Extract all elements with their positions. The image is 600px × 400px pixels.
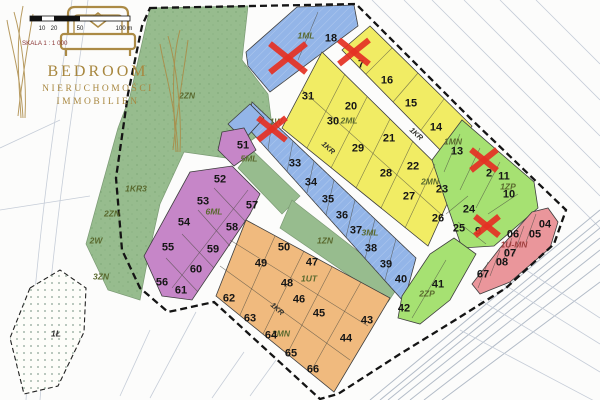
area-label-1ZN: 1ZN: [317, 236, 334, 246]
scale-segment: [30, 16, 42, 21]
lot-number-56: 56: [156, 277, 168, 289]
lot-number-11: 11: [498, 171, 510, 183]
lot-number-08: 08: [496, 257, 508, 269]
lot-number-16: 16: [381, 75, 393, 87]
lot-number-34: 34: [305, 177, 318, 189]
br and-subtitle2: IMMOBILIEN: [56, 97, 139, 107]
scale-bar: 10 20 50 100 m SKALA 1 : 1 000: [22, 16, 132, 47]
lot-number-35: 35: [322, 194, 334, 206]
lot-number-64: 64: [265, 330, 278, 342]
lot-number-33: 33: [289, 158, 301, 170]
zone-label-6ML: 6ML: [206, 207, 223, 217]
lot-number-50: 50: [278, 242, 290, 254]
brand-name: BEDROOM: [47, 63, 148, 80]
lot-number-62: 62: [223, 293, 235, 305]
lot-number-40: 40: [395, 274, 407, 286]
lot-number-61: 61: [175, 285, 187, 297]
scale-tick-50: 50: [77, 26, 84, 32]
area-label-1KR3: 1KR3: [125, 184, 147, 194]
scale-tick-10: 10: [39, 26, 46, 32]
lot-number-67: 67: [477, 269, 489, 281]
forest-area: [10, 270, 86, 394]
lot-number-28: 28: [380, 168, 392, 180]
area-label-1Ł: 1Ł: [51, 329, 61, 339]
lot-number-24: 24: [463, 204, 476, 216]
lot-number-44: 44: [340, 333, 353, 345]
lot-number-18: 18: [325, 33, 337, 45]
area-label-2ZN: 2ZN: [103, 209, 121, 219]
lot-number-05: 05: [529, 229, 541, 241]
lot-number-36: 36: [336, 210, 348, 222]
forest-texture: [10, 270, 86, 394]
lot-number-63: 63: [244, 313, 256, 325]
lot-number-25: 25: [453, 223, 465, 235]
lot-number-10: 10: [503, 189, 515, 201]
lot-number-58: 58: [226, 222, 238, 234]
lot-number-31: 31: [302, 91, 314, 103]
lot-number-27: 27: [403, 191, 415, 203]
area-label-3ZN: 3ZN: [93, 272, 110, 282]
lot-number-66: 66: [307, 364, 319, 376]
map-canvas: 1KR1KR1KR 2ZN2ZN2W3ZN1KR31Ł1W1ZN 1ML2ML2…: [0, 0, 600, 400]
plot-map: 1KR1KR1KR 2ZN2ZN2W3ZN1KR31Ł1W1ZN 1ML2ML2…: [0, 0, 600, 400]
scale-tick-100: 100 m: [116, 26, 133, 32]
logo: BEDROOM NIERUCHOMOŚCI IMMOBILIEN: [42, 7, 154, 107]
lot-number-41: 41: [432, 279, 444, 291]
zone-label-1ML: 1ML: [298, 31, 315, 41]
scale-tick-20: 20: [51, 26, 58, 32]
lot-number-26: 26: [432, 213, 444, 225]
lot-number-43: 43: [361, 315, 373, 327]
scale-segment: [54, 16, 80, 21]
scale-caption: SKALA 1 : 1 000: [22, 40, 68, 47]
lot-number-48: 48: [281, 278, 293, 290]
wheat-decoration-left: [7, 6, 33, 118]
lot-number-49: 49: [255, 258, 267, 270]
lot-number-15: 15: [405, 98, 417, 110]
lot-number-46: 46: [293, 294, 305, 306]
lot-number-65: 65: [285, 348, 297, 360]
lot-number-60: 60: [190, 264, 202, 276]
lot-number-29: 29: [352, 143, 364, 155]
lot-number-38: 38: [365, 243, 377, 255]
lot-number-13: 13: [451, 146, 463, 158]
lot-number-53: 53: [197, 196, 209, 208]
zone-label-3ML: 3ML: [362, 228, 379, 238]
zone-label-5ML: 5ML: [241, 154, 258, 164]
lot-number-06: 06: [507, 229, 519, 241]
lot-number-39: 39: [380, 259, 392, 271]
zone-label-1UT: 1UT: [301, 274, 318, 284]
lot-number-55: 55: [162, 242, 174, 254]
lot-number-20: 20: [345, 101, 357, 113]
lot-number-14: 14: [430, 122, 443, 134]
lot-number-54: 54: [178, 217, 191, 229]
lot-number-22: 22: [407, 161, 419, 173]
zone-label-2ML: 2ML: [340, 116, 358, 126]
lot-number-51: 51: [237, 140, 249, 152]
lot-number-45: 45: [313, 308, 325, 320]
area-label-2W: 2W: [89, 236, 104, 246]
lot-number-42: 42: [398, 303, 410, 315]
lot-number-57: 57: [246, 200, 258, 212]
lot-number-47: 47: [306, 257, 318, 269]
lot-number-21: 21: [383, 133, 395, 145]
lot-number-23: 23: [436, 184, 448, 196]
lot-number-59: 59: [207, 244, 219, 256]
lot-number-37: 37: [350, 225, 362, 237]
lot-number-52: 52: [214, 174, 226, 186]
lot-number-30: 30: [327, 116, 339, 128]
brand-subtitle: NIERUCHOMOŚCI: [42, 82, 154, 94]
